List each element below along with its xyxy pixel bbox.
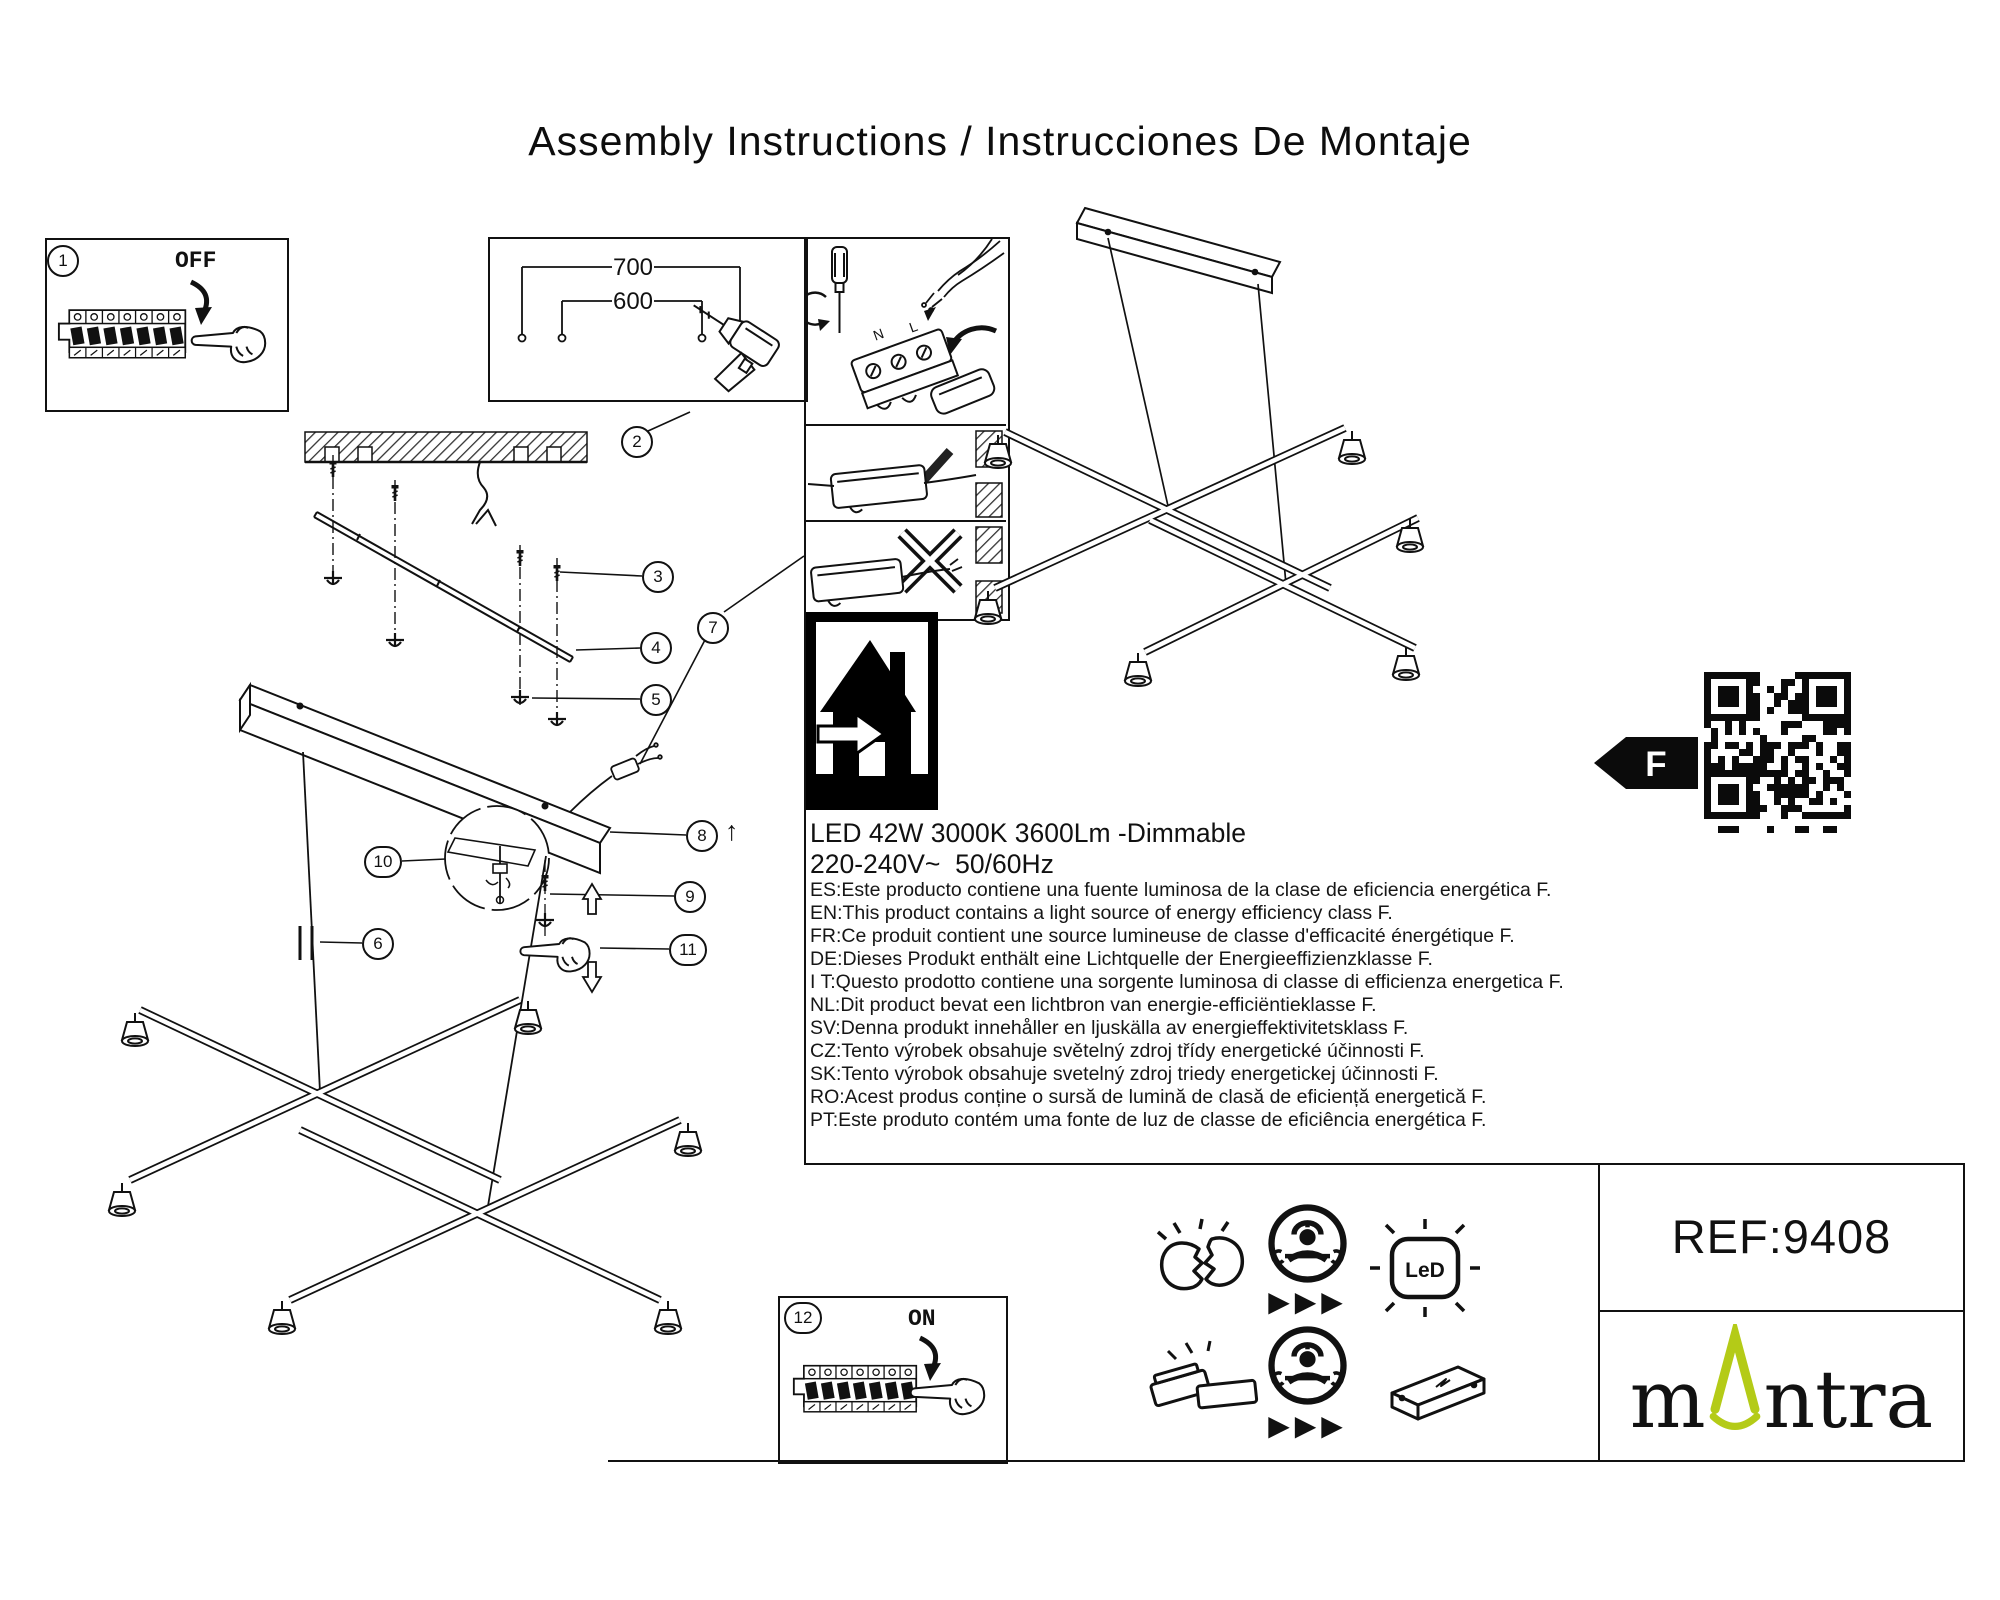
off-arrow-icon [191, 282, 212, 325]
energy-statement-sk: SK:Tento výrobok obsahuje svetelný zdroj… [810, 1063, 1580, 1086]
qr-code [1700, 666, 1856, 834]
instruction-sheet: Assembly Instructions / Instrucciones De… [0, 0, 2000, 1600]
pendant-canopy [1077, 208, 1280, 293]
insert-arrow-icon [924, 307, 936, 321]
outer-dimension-label: 700 [613, 254, 653, 281]
callout-7: 7 [697, 612, 729, 644]
technician-icon-2 [1272, 1330, 1344, 1402]
technician-icon [1272, 1208, 1344, 1280]
callout-9: 9 [674, 881, 706, 913]
height-adjust-arrows [583, 884, 601, 992]
replace-arrows-2: ▶▶▶ [1268, 1410, 1348, 1441]
pendant-frame [975, 428, 1423, 686]
wire-plug [536, 913, 554, 927]
callout-1: 1 [47, 245, 79, 277]
energy-statement-sv: SV:Denna produkt innehåller en ljuskälla… [810, 1017, 1580, 1040]
callout-11: 11 [669, 934, 707, 966]
power-off-label: OFF [175, 248, 216, 274]
ceiling-canopy [240, 685, 610, 873]
power-on-label: ON [908, 1306, 936, 1332]
page-title: Assembly Instructions / Instrucciones De… [0, 118, 2000, 165]
new-led-icon: LeD [1370, 1219, 1480, 1317]
spec-line-2: 220-240V~ 50/60Hz [810, 849, 1570, 880]
footer-right-line [1963, 1163, 1965, 1462]
brand-logo: m ntra [1600, 1312, 1963, 1458]
new-driver-icon [1392, 1367, 1484, 1419]
step1-drawing [45, 238, 285, 408]
cross-icon [902, 533, 958, 589]
breaker-panel-icon [59, 310, 185, 358]
energy-statement-cz: CZ:Tento výrobek obsahuje světelný zdroj… [810, 1040, 1580, 1063]
replace-arrows-1: ▶▶▶ [1268, 1286, 1348, 1317]
pendant-wires [1108, 238, 1286, 584]
spec-line-1: LED 42W 3000K 3600Lm -Dimmable [810, 818, 1570, 849]
callout-8: 8 [686, 820, 718, 852]
live-terminal-label: L [907, 318, 920, 336]
service-icons: ▶▶▶ LeD ▶▶▶ [1140, 1195, 1490, 1445]
assembly-diagram [100, 410, 810, 1340]
lift-up-arrow: ↑ [725, 816, 739, 847]
assembled-lamp-drawing [955, 190, 1430, 710]
mounting-rail [314, 512, 573, 662]
energy-statement-ro: RO:Acest produs conține o sursă de lumin… [810, 1086, 1580, 1109]
energy-statement-pt: PT:Este produto contém uma fonte de luz … [810, 1109, 1580, 1132]
energy-class-arrow: F [1588, 733, 1700, 793]
brand-suffix: ntra [1764, 1360, 1934, 1440]
indoor-use-icon [806, 612, 938, 810]
breaker-panel-icon-12 [794, 1366, 916, 1412]
callout-4: 4 [640, 632, 672, 664]
ceiling-wire [472, 462, 496, 526]
callout-12: 12 [784, 1302, 822, 1334]
energy-statement-es: ES:Este producto contiene una fuente lum… [810, 879, 1580, 902]
callout-5: 5 [640, 684, 672, 716]
energy-statement-de: DE:Dieses Produkt enthält eine Lichtquel… [810, 948, 1580, 971]
lamp-frame [109, 1000, 701, 1334]
broken-driver-icon [1148, 1341, 1257, 1408]
reference-number: REF:9408 [1600, 1165, 1963, 1308]
neutral-terminal-label: N [871, 325, 886, 343]
drill-icon [665, 292, 781, 398]
pointing-hand-icon [192, 327, 266, 362]
callout-3: 3 [642, 561, 674, 593]
energy-statement-it: I T:Questo prodotto contiene una sorgent… [810, 971, 1580, 994]
callout-10: 10 [364, 846, 402, 878]
pointing-hand-icon-12 [911, 1379, 985, 1414]
drill-dimension-drawing: 700 600 [488, 237, 804, 398]
energy-class-letter: F [1645, 745, 1666, 784]
broken-led-icon [1158, 1219, 1242, 1289]
inner-dimension-label: 600 [613, 288, 653, 315]
energy-statement-nl: NL:Dit product bevat een lichtbron van e… [810, 994, 1580, 1017]
quick-connector [570, 743, 662, 812]
cable-lock-detail [445, 806, 549, 910]
brand-lambda-icon [1706, 1324, 1764, 1440]
energy-statement-fr: FR:Ce produit contient une source lumine… [810, 925, 1580, 948]
callout-2: 2 [621, 426, 653, 458]
brand-prefix: m [1630, 1360, 1706, 1440]
wire-sleeve [300, 926, 312, 960]
led-badge-label: LeD [1405, 1259, 1445, 1282]
callout-6: 6 [362, 928, 394, 960]
on-arrow-icon [920, 1338, 941, 1381]
screwdriver-icon [804, 247, 847, 333]
wire-screw [542, 875, 549, 891]
energy-statement-en: EN:This product contains a light source … [810, 902, 1580, 925]
